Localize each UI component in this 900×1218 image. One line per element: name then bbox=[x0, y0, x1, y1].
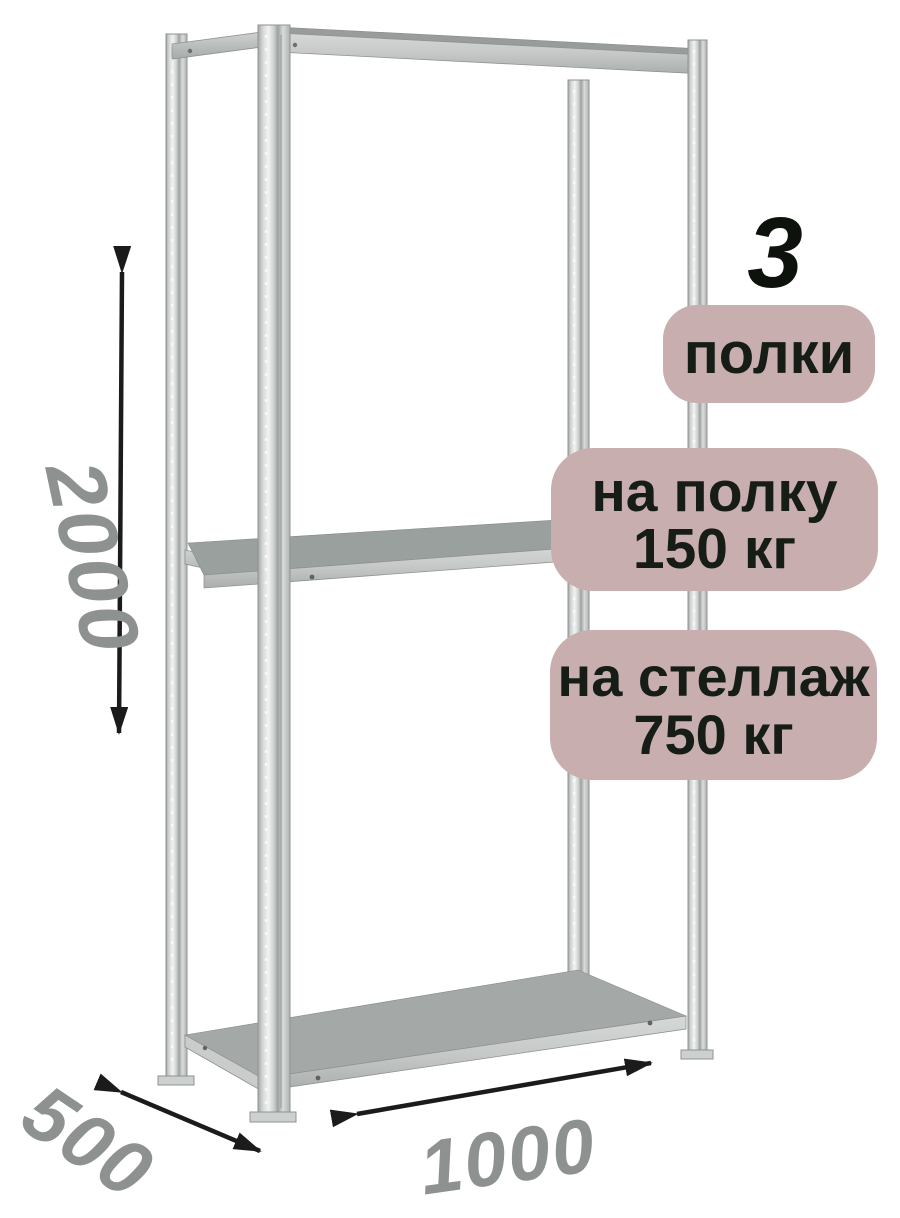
per-shelf-load-line1: на полку bbox=[551, 464, 878, 521]
per-rack-load-line2: 750 кг bbox=[550, 706, 877, 764]
shelf-count-badge: полки bbox=[663, 305, 875, 403]
per-shelf-load-badge: на полку 150 кг bbox=[551, 448, 878, 591]
shelf-count-label: полки bbox=[684, 321, 855, 386]
per-rack-load-badge: на стеллаж 750 кг bbox=[550, 630, 877, 780]
shelf-count-number: 3 bbox=[715, 203, 835, 303]
rack-top-shelf bbox=[172, 26, 704, 74]
product-card: 2000 500 1000 3 полки на полку 150 кг на… bbox=[0, 0, 900, 1200]
per-shelf-load-line2: 150 кг bbox=[551, 521, 878, 578]
per-rack-load-line1: на стеллаж bbox=[550, 648, 877, 706]
